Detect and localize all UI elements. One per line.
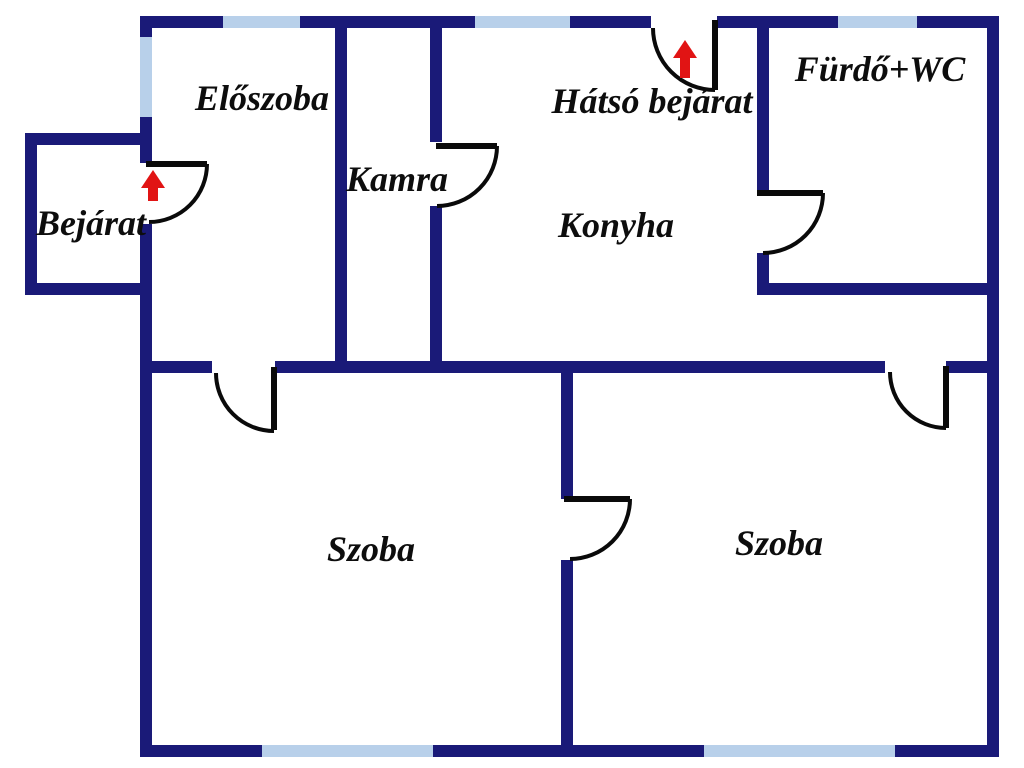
konyha-szoba-door-arc xyxy=(890,372,946,428)
back-entrance-arrow-icon xyxy=(673,40,697,78)
floor-plan: Előszoba Kamra Hátsó bejárat Fürdő+WC Be… xyxy=(0,0,1024,768)
furdo-door-arc xyxy=(763,193,823,253)
room-label-hatso-bejarat: Hátsó bejárat xyxy=(551,80,752,122)
room-label-bejarat: Bejárat xyxy=(36,202,146,244)
room-label-konyha: Konyha xyxy=(558,204,674,246)
room-label-szoba-2: Szoba xyxy=(735,522,823,564)
szoba-szoba-door-arc xyxy=(570,499,630,559)
main-entrance-arrow-icon xyxy=(141,170,165,201)
doors-and-arrows-layer xyxy=(0,0,1024,768)
eloszoba-szoba-door-arc xyxy=(216,373,274,431)
room-label-szoba-1: Szoba xyxy=(327,528,415,570)
room-label-furdo-wc: Fürdő+WC xyxy=(795,48,966,90)
room-label-kamra: Kamra xyxy=(346,158,448,200)
room-label-eloszoba: Előszoba xyxy=(195,77,329,119)
